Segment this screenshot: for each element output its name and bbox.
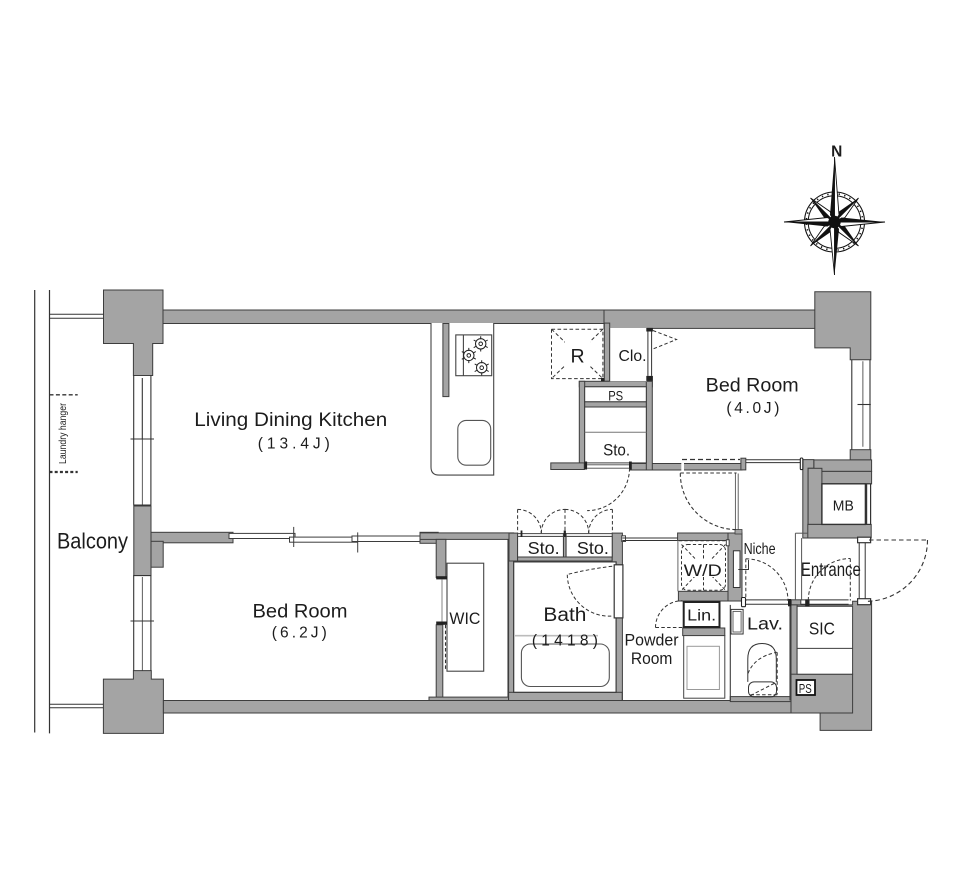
svg-text:Entrance: Entrance <box>801 559 861 581</box>
svg-text:Sto.: Sto. <box>603 440 630 459</box>
svg-text:PS: PS <box>608 388 623 404</box>
svg-text:W/D: W/D <box>684 561 722 580</box>
svg-text:PS: PS <box>799 681 812 696</box>
svg-text:Lin.: Lin. <box>687 608 716 625</box>
svg-text:(4.0J): (4.0J) <box>726 400 779 417</box>
svg-text:Living Dining Kitchen: Living Dining Kitchen <box>194 409 387 431</box>
svg-text:(6.2J): (6.2J) <box>272 625 327 642</box>
svg-text:Powder: Powder <box>625 631 679 650</box>
svg-text:R: R <box>570 345 584 367</box>
svg-text:Bed Room: Bed Room <box>253 601 348 623</box>
svg-text:MB: MB <box>833 498 854 514</box>
svg-text:Sto.: Sto. <box>528 538 560 558</box>
svg-text:Clo.: Clo. <box>619 348 647 365</box>
svg-text:Sto.: Sto. <box>577 538 609 558</box>
svg-text:N: N <box>831 143 842 160</box>
svg-text:SIC: SIC <box>809 618 835 638</box>
svg-text:Lav.: Lav. <box>747 613 783 633</box>
svg-text:Room: Room <box>631 649 673 668</box>
svg-text:Bed Room: Bed Room <box>706 376 799 397</box>
svg-text:Niche: Niche <box>744 541 776 558</box>
svg-text:(13.4J): (13.4J) <box>258 436 330 453</box>
svg-text:Balcony: Balcony <box>57 529 128 554</box>
svg-text:Laundry hanger: Laundry hanger <box>57 403 69 464</box>
svg-text:WIC: WIC <box>449 610 480 628</box>
svg-text:Bath: Bath <box>543 605 586 626</box>
